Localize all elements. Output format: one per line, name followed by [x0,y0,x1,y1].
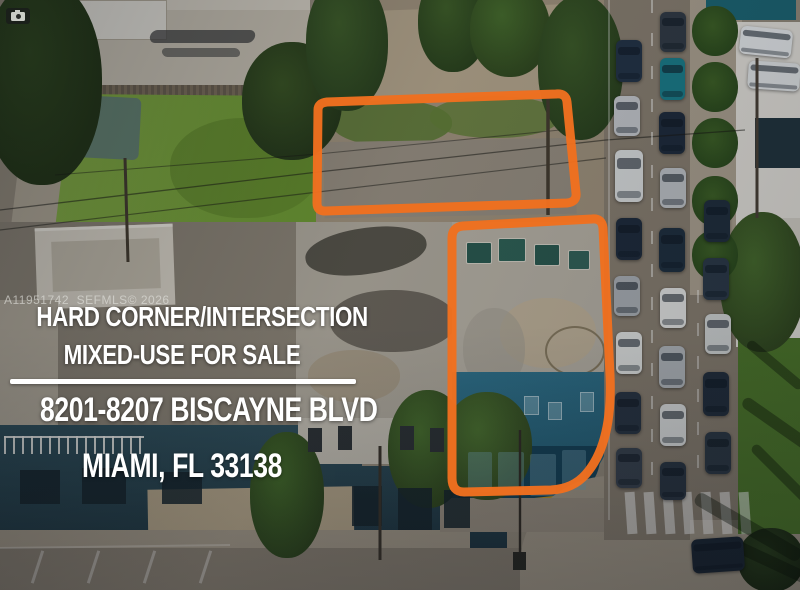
car-windshield [750,65,798,74]
window [400,426,414,450]
mls-watermark: A11951742 SEFMLS© 2026 [4,293,170,307]
car-rear-glass [618,365,640,371]
storefront-window [468,452,492,492]
car-rear-glass [707,345,729,351]
car-rear-glass [662,492,684,497]
car [659,228,685,272]
car-windshield [705,379,727,388]
crosswalk-stripe [644,492,657,535]
address-line: 8201-8207 BISCAYNE BLVD [40,393,324,427]
tree [306,0,388,111]
ac-unit [534,244,560,266]
hedge [692,6,738,56]
tree [0,0,102,185]
dark-window [444,490,470,528]
ac-unit [568,250,590,270]
car [616,40,642,82]
car-windshield [617,158,641,168]
car [616,448,642,488]
car-rear-glass [662,437,684,443]
window [580,392,594,412]
car-windshield [707,320,729,328]
window [548,402,562,420]
car-windshield [662,468,684,476]
car-windshield [618,339,640,347]
aerial-photo: A11951742 SEFMLS© 2026 HARD CORNER/INTER… [0,0,800,590]
car-windshield [693,542,741,552]
camera-icon [6,8,30,24]
car-rear-glass [662,199,684,205]
window [430,428,444,452]
car [659,346,685,388]
car-rear-glass [661,145,683,151]
car-rear-glass [661,262,683,268]
car-rear-glass [618,73,640,79]
storefront-window [498,452,524,494]
hedge [692,118,738,168]
crosswalk-stripe [625,492,638,535]
headline-divider [10,379,356,384]
car-windshield [662,294,684,302]
car [614,276,640,316]
ac-unit [498,238,526,262]
car [615,150,643,202]
car-windshield [743,30,791,41]
car-windshield [616,282,638,290]
headline-line-2: MIXED-USE FOR SALE [36,341,327,369]
car-windshield [706,207,728,215]
parking-stripe [199,550,212,583]
car-windshield [618,454,640,462]
car [659,112,685,154]
car-rear-glass [707,465,729,471]
car-windshield [662,18,684,26]
car [660,288,686,328]
car-rear-glass [705,406,727,412]
car [660,168,686,208]
car-rear-glass [706,233,728,239]
storefront-window [562,450,586,490]
tree [720,212,800,352]
car-windshield [618,47,640,55]
car [705,432,731,474]
dark-window [352,486,382,526]
real-estate-listing-photo: A11951742 SEFMLS© 2026 HARD CORNER/INTER… [0,0,800,600]
car [747,60,800,92]
car-rear-glass [617,191,641,198]
car-windshield [707,439,729,447]
car [660,404,686,446]
car-rear-glass [618,251,640,257]
tree [538,0,623,140]
ac-unit [466,242,492,264]
car-rear-glass [616,127,638,133]
car [691,536,745,574]
car-rear-glass [661,379,683,385]
car-windshield [616,102,638,110]
car-rear-glass [705,291,727,297]
bottom-white-strip [0,590,800,600]
palm-shadow [740,396,800,453]
car-rear-glass [662,43,684,49]
car-windshield [661,119,683,127]
car-windshield [662,411,684,419]
car [703,258,729,300]
car-windshield [618,225,640,233]
car [660,58,685,100]
car-rear-glass [618,479,640,485]
car-rear-glass [662,91,683,97]
car-rear-glass [616,307,638,313]
dark-window [398,488,432,530]
car [615,392,641,434]
car-windshield [661,353,683,361]
car [660,462,686,500]
parking-stripe [31,550,44,583]
car-rear-glass [741,47,789,56]
palm-shadow [750,443,800,504]
parking-stripe [143,550,156,583]
storefront-window [530,454,556,496]
car [703,372,729,416]
hedge [692,62,738,112]
window [524,396,539,415]
city-line: MIAMI, FL 33138 [40,449,324,483]
car-rear-glass [662,319,684,325]
parking-stripe [87,550,100,583]
car [704,200,730,242]
car [705,314,731,354]
car-windshield [705,265,727,273]
headline-line-1: HARD CORNER/INTERSECTION [36,303,327,331]
car [660,12,686,52]
car-rear-glass [617,425,639,431]
car [616,218,642,260]
car-rear-glass [695,563,743,571]
car [616,332,642,374]
car-windshield [662,174,684,182]
car [739,25,794,58]
car-rear-glass [749,82,797,89]
car [614,96,640,136]
window [338,426,352,450]
car-windshield [661,235,683,244]
car-windshield [662,65,683,73]
car-windshield [617,399,639,407]
